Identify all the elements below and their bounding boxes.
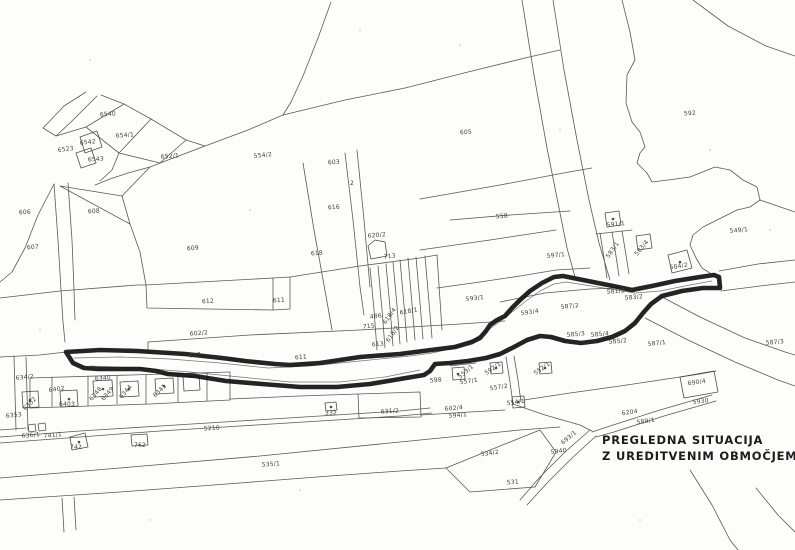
parcel-label: 693/1 <box>560 429 579 446</box>
parcel-label: 611 <box>295 354 307 362</box>
parcel-label: 535/1 <box>262 460 281 468</box>
parcel-label: 609 <box>187 245 200 253</box>
parcel-label: 593/1 <box>465 294 484 303</box>
parcel-label: 715 <box>363 322 376 330</box>
parcel-label: 618/1 <box>399 306 418 316</box>
parcel-label: 557/1 <box>459 377 478 386</box>
parcel-label: 332 <box>325 410 337 417</box>
parcel-labels: 6540654/1654265436523652/160660860760955… <box>5 110 784 487</box>
parcel-label: 608 <box>88 208 101 216</box>
parcel-label: 549/1 <box>729 226 748 235</box>
parcel-label: 587/3 <box>765 338 784 347</box>
parcel-label: 602/2 <box>190 329 209 337</box>
parcel-label: 593/4 <box>520 308 539 317</box>
parcel-label: 690/4 <box>687 378 706 387</box>
parcel-label: 2 <box>350 180 354 187</box>
parcel-label: 486 <box>369 312 382 320</box>
parcel-label: 6523 <box>57 145 74 154</box>
parcel-label: 652/1 <box>161 152 180 160</box>
parcel-label: 6540 <box>100 110 117 118</box>
parcel-label: 636/1 <box>21 431 40 440</box>
parcel-label: 6543 <box>88 155 105 163</box>
parcel-label: 6402 <box>48 385 65 394</box>
parcel-lines <box>0 0 795 550</box>
parcel-label: 603 <box>328 159 341 167</box>
parcel-label: 598 <box>430 376 443 384</box>
parcel-label: 6353 <box>5 411 22 420</box>
map-title: PREGLEDNA SITUACIJA Z UREDITVENIM OBMOČJ… <box>602 432 795 464</box>
parcel-label: 605 <box>460 129 473 137</box>
parcel-label: 587/1 <box>647 339 666 348</box>
parcel-label: 591/1 <box>606 220 625 229</box>
parcel-label: 6340 <box>95 374 112 382</box>
parcel-label: 631/2 <box>381 408 400 416</box>
parcel-label: 607 <box>27 244 40 252</box>
parcel-label: 583/2 <box>624 293 643 302</box>
parcel-label: 585/2 <box>608 337 627 346</box>
parcel-label: 6403 <box>59 401 75 408</box>
parcel-label: 594/1 <box>448 411 467 420</box>
parcel-label: 612 <box>202 298 214 306</box>
parcel-label: 606 <box>19 209 32 217</box>
parcel-label: 762 <box>134 442 146 449</box>
parcel-label: 589/1 <box>636 417 655 426</box>
parcel-label: 531 <box>507 479 520 487</box>
parcel-label: 554/1 <box>506 398 525 407</box>
parcel-label: 6542 <box>79 138 96 147</box>
parcel-label: 597/1 <box>546 251 565 260</box>
parcel-label: 611 <box>273 297 285 305</box>
parcel-label: 6352 <box>22 396 38 412</box>
map-canvas: 6540654/1654265436523652/160660860760955… <box>0 0 795 550</box>
parcel-label: 534/2 <box>480 449 499 458</box>
map-title-line1: PREGLEDNA SITUACIJA <box>602 432 795 448</box>
parcel-label: 618/4 <box>382 307 398 326</box>
map-title-line2: Z UREDITVENIM OBMOČJEM <box>602 448 795 464</box>
parcel-label: 583/4 <box>633 239 650 258</box>
parcel-label: 6204 <box>621 408 638 417</box>
parcel-label: 742 <box>70 444 82 451</box>
parcel-label: 654/1 <box>116 131 135 139</box>
parcel-label: 634/2 <box>15 373 34 382</box>
parcel-label: 5210 <box>204 424 221 432</box>
parcel-label: 6341 <box>152 383 168 399</box>
cadastral-map: 6540654/1654265436523652/160660860760955… <box>0 0 795 550</box>
parcel-label: 5930 <box>692 397 709 406</box>
parcel-label: 583/1 <box>605 241 621 260</box>
parcel-label: 617 <box>189 352 202 360</box>
parcel-label: 5940 <box>550 447 567 456</box>
parcel-label: 618 <box>311 250 324 258</box>
parcel-label: 554/2 <box>253 151 272 160</box>
parcel-label: 713 <box>383 252 396 261</box>
parcel-label: 558 <box>496 213 509 221</box>
parcel-label: 616 <box>328 204 341 212</box>
parcel-label: 587/2 <box>560 302 579 311</box>
parcel-label: 557/2 <box>489 383 508 392</box>
parcel-label: 581/2 <box>606 287 625 296</box>
parcel-label: 620/2 <box>367 231 386 240</box>
parcel-label: 613 <box>372 340 385 348</box>
parcel-label: 592 <box>684 110 696 118</box>
parcel-label: 585/3 <box>566 330 585 339</box>
